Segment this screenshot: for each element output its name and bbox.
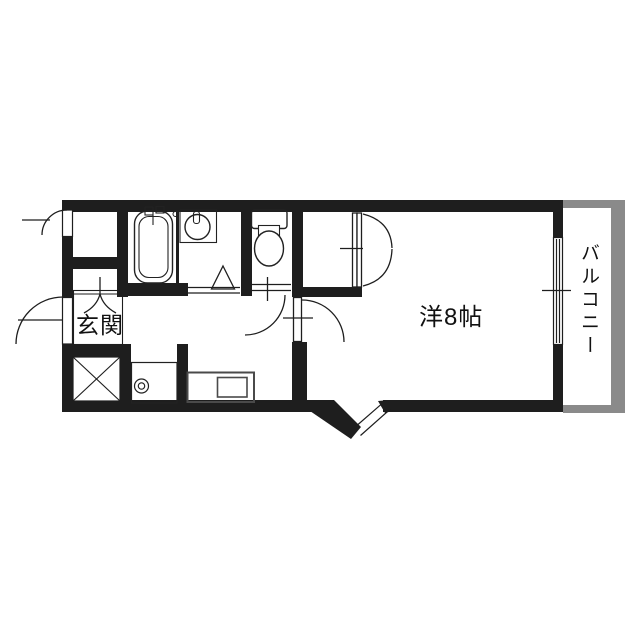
toilet-icon [255,231,284,266]
top-wall [62,200,563,212]
diagonal-wall [310,400,361,439]
right-wall-upper [553,208,563,238]
door-arc-icon [363,214,392,248]
closet-bottom-wall [292,287,362,297]
toilet-right-wall [292,208,303,297]
door-stub-wall [292,342,307,412]
shaft-right-wall [120,344,131,412]
compartment-divider-wall [62,257,127,269]
washer-pan-icon [132,363,178,404]
bathtub-inner [139,217,168,278]
entrance-door-opening [63,298,73,345]
corner-window-line [354,401,385,428]
wash-basin-icon [185,215,210,240]
washer-drain-icon [135,379,149,393]
bath-bottom-wall [117,283,188,296]
fixtures [132,207,288,404]
door-arc-icon [302,300,344,342]
balcony-label: バルコニー [575,243,602,358]
corner-window-line [361,409,392,436]
storage-door-opening [63,210,73,237]
entrance-label: 玄関 [76,306,124,340]
double-door-icon [353,213,358,287]
wash-basin-spout [194,212,200,224]
toilet-left-wall [241,208,252,296]
balcony-wall-bottom [563,405,625,413]
double-door-icon [357,213,362,287]
folding-door-icon [212,266,235,289]
kitchen-sink-icon [218,378,248,398]
right-wall-lower [553,344,563,412]
balcony-wall-right [611,200,625,413]
washer-drain-icon [138,383,144,389]
main-room-label: 洋8帖 [419,297,483,332]
door-leaf [294,298,302,342]
door-arc-icon [363,249,392,286]
bath-washroom-divider [176,212,179,283]
door-arc-icon [245,295,285,335]
floor-plan: 玄関 洋8帖 バルコニー [0,0,640,640]
left-wall-upper [62,200,73,211]
kitchen-partition-wall [177,344,188,403]
bottom-wall-east [383,400,563,412]
shaft-box [73,357,120,401]
